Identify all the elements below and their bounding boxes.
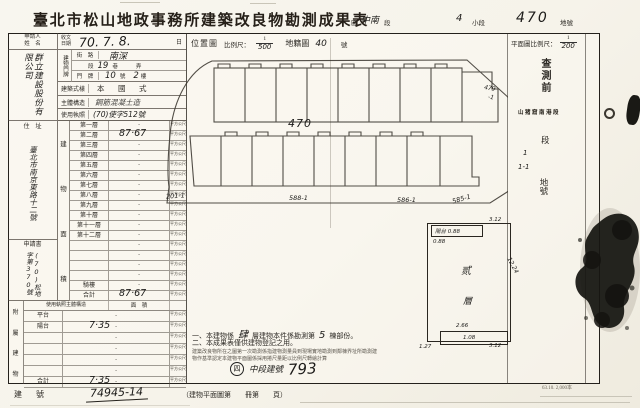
floor-row: · 平方公尺 (70, 251, 186, 261)
decimal-dot: · (138, 271, 140, 279)
unit-label: 平方公尺 (169, 344, 186, 354)
cadastral-map-label: 地籍圖 (285, 38, 309, 49)
floor-label: 第四層 (70, 151, 109, 160)
annex-value-cell: · (63, 333, 169, 343)
building-reg-label: 建 號 (14, 389, 47, 400)
floor-value-cell: · (109, 231, 169, 240)
note1-hw-number: 5 (319, 330, 325, 341)
scale-label: 比例尺： (224, 39, 250, 49)
annex-char: 附 (12, 307, 18, 316)
annex-header-row: 使用執照主體構造 面 積 (24, 301, 186, 311)
street-value: 南深 (109, 49, 127, 62)
plan-scale-fraction: 1 200 (560, 36, 577, 50)
unit-label: 平方公尺 (169, 241, 186, 250)
decimal-dot: · (138, 171, 140, 179)
lot-number-char: 地號 (538, 178, 550, 208)
floor-value-cell: · (109, 241, 169, 250)
unit-label: 平方公尺 (169, 231, 186, 240)
reg-section-label: 中段建號 (249, 363, 283, 375)
decimal-dot: · (138, 221, 140, 229)
scale-denominator: 500 (256, 43, 273, 51)
decimal-dot: · (115, 345, 117, 353)
lot-number-label: 地號 (560, 17, 573, 27)
street-label: 街 路 (72, 51, 99, 59)
unit-label: 平方公尺 (169, 355, 186, 365)
decimal-dot: · (115, 323, 117, 331)
floor-label (70, 261, 109, 270)
plan-floor-char-2: 層 (463, 294, 472, 307)
section-label: 段 (384, 17, 391, 27)
annex-char: 屬 (12, 328, 18, 337)
decimal-dot: · (138, 241, 140, 249)
subsection-label: 小段 (472, 17, 485, 27)
receipt-date-label-1: 收文 (61, 36, 71, 42)
annex-area-value: 7·35 (89, 376, 110, 386)
plan-scale-header: 平面圖比例尺： 1 200 (511, 36, 577, 50)
decimal-dot: · (138, 191, 140, 199)
receipt-date-cell: 收文 日期 70. 7. 8. 日 (58, 33, 186, 50)
floor-number-value: 2 (133, 71, 138, 81)
floor-label: 第六層 (70, 171, 109, 180)
location-map-header: 位置圖 比例尺： 1 500 地籍圖 40 號 (191, 37, 347, 51)
annex-label (24, 355, 63, 365)
unit-bottom-right (440, 136, 479, 186)
style-value: 本 國 式 (97, 83, 150, 94)
note-line-2: 二、本成果表僅供建物登記之用。 (192, 338, 297, 348)
plan-book-note: （建物平面圖第 冊第 頁） (182, 390, 287, 400)
floor-row: · 平方公尺 (70, 241, 186, 251)
annex-value-cell: · (63, 311, 169, 321)
lane-value: 19 (98, 61, 109, 71)
scan-noise (10, 405, 190, 406)
annex-value-cell: · (63, 366, 169, 376)
building-reg-value: 74945-14 (90, 385, 143, 400)
lot-label-586: 586-1 (397, 196, 416, 204)
floor-area-value: 87·67 (119, 289, 146, 298)
survey-hw-2: 1-1 (518, 163, 529, 171)
side-lot-suffix: -1 (487, 94, 494, 102)
annex-label: 陽台 (24, 322, 63, 332)
structure-value: 鋼筋混凝土造 (95, 97, 140, 108)
annex-value-cell: · (63, 355, 169, 365)
subsection-value: 4 (456, 13, 462, 24)
unit-label: 平方公尺 (169, 366, 186, 376)
decimal-dot: · (138, 251, 140, 259)
annex-row: · 平方公尺 (24, 355, 186, 366)
balcony-width: 0.88 (433, 239, 445, 245)
annex-value-cell: · (63, 344, 169, 354)
unit-label: 平方公尺 (169, 377, 186, 387)
print-run-note: 63.10. 2,000本 (542, 384, 572, 391)
decimal-dot: · (115, 356, 117, 364)
scanned-survey-form: 臺北市松山地政事務所建築改良物勘測成果表 區 中南 段 4 小段 470 地號 … (0, 0, 640, 408)
floor-label: 第八層 (70, 191, 109, 200)
floor-label: 第九層 (70, 201, 109, 210)
floor-value-cell: · (109, 251, 169, 260)
annex-row: · 平方公尺 (24, 333, 186, 344)
license-label: 使用執照 (58, 110, 89, 119)
annex-row: 陽台 ·7·35 平方公尺 (24, 322, 186, 333)
floor-value-cell: · (109, 261, 169, 270)
area-column-label: 建 物 面 積 (58, 121, 70, 301)
lot-label-588: 588-1 (289, 194, 308, 202)
floor-value-cell: · (109, 271, 169, 280)
plan-floor-char-1: 贰 (461, 262, 471, 277)
decimal-dot: · (115, 312, 117, 320)
unit-band-bottom (190, 136, 440, 186)
floor-label: 第十一層 (70, 221, 109, 230)
area-char: 建 (60, 138, 67, 148)
address-cell: 住 址 臺北市南京東路十二號 (8, 121, 58, 240)
scan-noise (300, 402, 630, 403)
floor-label: 第三層 (70, 141, 109, 150)
floor-area-value: 87·67 (119, 129, 146, 138)
floor-label (70, 241, 109, 250)
decimal-dot: · (138, 261, 140, 269)
ink-smudge-artifact (625, 94, 640, 126)
decimal-dot: · (115, 378, 117, 386)
annex-label (24, 366, 63, 376)
annex-header-structure: 使用執照主體構造 (24, 301, 109, 310)
floor-suffix: 樓 (141, 72, 147, 80)
plan-scale-label: 平面圖比例尺： (511, 38, 557, 48)
plan-scale-denominator: 200 (560, 42, 577, 50)
floor-row: · 平方公尺 (70, 261, 186, 271)
district-value: 中南 (361, 13, 379, 26)
unit-label: 平方公尺 (169, 251, 186, 260)
cadastral-map-suffix: 號 (341, 39, 348, 49)
area-char: 積 (60, 273, 67, 283)
decimal-dot: · (138, 181, 140, 189)
decimal-dot: · (138, 141, 140, 149)
annex-char: 建 (12, 348, 18, 357)
unit-label: 平方公尺 (169, 281, 186, 290)
ink-blob-artifact (572, 200, 640, 350)
door-label-cell: 建物門牌 (58, 50, 72, 82)
unit-label: 平方公尺 (169, 322, 186, 332)
lane-label-1: 段 (88, 62, 94, 70)
lane-label-2: 巷 (112, 62, 118, 70)
district-label: 區 (351, 17, 358, 27)
lane-label-3: 弄 (136, 62, 142, 70)
decimal-dot: · (138, 151, 140, 159)
unit-label: 平方公尺 (169, 311, 186, 321)
application-cell: 申請書 (70)松地字第370號 (8, 240, 58, 301)
company-cell: 群立建設股份有限公司 (8, 50, 58, 121)
annex-value-cell: ·7·35 (63, 322, 169, 332)
house-number-value: 10 (105, 71, 116, 81)
floor-label (70, 251, 109, 260)
scale-fraction: 1 500 (256, 37, 273, 51)
page-title: 臺北市松山地政事務所建築改良物勘測成果表 (33, 9, 369, 30)
scan-noise (250, 3, 276, 4)
plan-top-width: 3.12 (489, 217, 501, 223)
center-lot-number: 470 (288, 117, 312, 130)
floor-row: · 平方公尺 (70, 271, 186, 281)
receipt-date-label-2: 日期 (61, 42, 71, 47)
floor-label: 第一層 (70, 121, 109, 130)
annex-label (24, 344, 63, 354)
style-label: 建築式樣 (58, 84, 89, 93)
house-number-suffix: 號 (120, 72, 126, 80)
registration-note: 四 中段建號 793 (230, 360, 317, 378)
floor-row: 合計 ·87·67 平方公尺 (70, 291, 186, 301)
license-value: (70)使字512號 (93, 109, 145, 120)
reg-number: 793 (288, 359, 318, 378)
structure-label: 主體構造 (58, 98, 89, 107)
annex-header-unit (169, 301, 186, 310)
decimal-dot: · (115, 334, 117, 342)
annex-label: 合計 (24, 377, 63, 387)
decimal-dot: · (138, 201, 140, 209)
address-value: 臺北市南京東路十二號 (28, 133, 38, 233)
floor-label: 第二層 (70, 131, 109, 140)
circled-four: 四 (230, 362, 244, 376)
floor-label: 第十層 (70, 211, 109, 220)
note1-text-c: 棟部份。 (329, 332, 357, 340)
application-value: (70)松地字第370號 (25, 251, 41, 297)
annex-column-label: 附 屬 建 物 (8, 301, 24, 384)
bottom-length: 2.66 (456, 323, 468, 329)
bottom-inner: 1.08 (463, 335, 475, 341)
floor-label: 第七層 (70, 181, 109, 190)
old-section-name: 山猪窟南港段 (518, 108, 588, 116)
section-char: 段 (541, 134, 550, 146)
survey-hw-1: 1 (523, 149, 527, 157)
lot-number-value: 470 (516, 10, 549, 26)
unit-label: 平方公尺 (169, 261, 186, 270)
floor-label (70, 271, 109, 280)
punch-ring-artifact (604, 108, 615, 119)
floor-row: 第十二層 · 平方公尺 (70, 231, 186, 241)
floor-value-cell: ·87·67 (109, 291, 169, 300)
location-map-label: 位置圖 (191, 38, 218, 49)
unit-label: 平方公尺 (169, 291, 186, 300)
cadastral-map-number: 40 (315, 39, 326, 49)
annex-area-value: 7·35 (89, 321, 110, 331)
annex-label (24, 333, 63, 343)
bottom-right-width: 3.12 (489, 343, 501, 349)
scan-noise (120, 2, 160, 3)
annex-char: 物 (12, 369, 18, 378)
house-number-label: 門 牌 (72, 72, 99, 80)
decimal-dot: · (138, 211, 140, 219)
unit-label: 平方公尺 (169, 271, 186, 280)
note-small-1: 建築改良物所在之圖第一次勘測係指建物測量員到現場實地勘測到鄰棟界址所勘測建 (192, 348, 430, 355)
applicant-cell: 申請人 姓 名 (8, 33, 58, 50)
area-char: 面 (60, 228, 67, 238)
annex-label: 平台 (24, 311, 63, 321)
unit-label: 平方公尺 (169, 333, 186, 343)
annex-table: 平台 · 平方公尺 陽台 ·7·35 平方公尺 · 平方公尺 · 平方公尺 · … (24, 311, 186, 384)
decimal-dot: · (115, 367, 117, 375)
door-label: 建物門牌 (61, 51, 68, 81)
area-char: 物 (60, 183, 67, 193)
floor-label: 第五層 (70, 161, 109, 170)
balcony-annotation: 陽台 0.88 (435, 227, 460, 235)
decimal-dot: · (138, 161, 140, 169)
applicant-label-2: 姓 名 (8, 41, 57, 47)
decimal-dot: · (138, 231, 140, 239)
applicant-company-name: 群立建設股份有限公司 (23, 53, 43, 117)
scan-noise (540, 396, 632, 397)
annex-header-area: 面 積 (109, 301, 169, 310)
receipt-date-value: 70. 7. 8. (79, 33, 131, 50)
floor-label: 騎樓 (70, 281, 109, 290)
applicant-label-1: 申請人 (8, 33, 57, 41)
annex-row: · 平方公尺 (24, 344, 186, 355)
floor-label: 合計 (70, 291, 109, 300)
application-label: 申請書 (8, 240, 57, 251)
floor-label: 第十二層 (70, 231, 109, 240)
receipt-date-suffix: 日 (176, 37, 182, 46)
lot-label-201: 201-1 (166, 191, 185, 200)
address-label: 住 址 (8, 121, 57, 133)
